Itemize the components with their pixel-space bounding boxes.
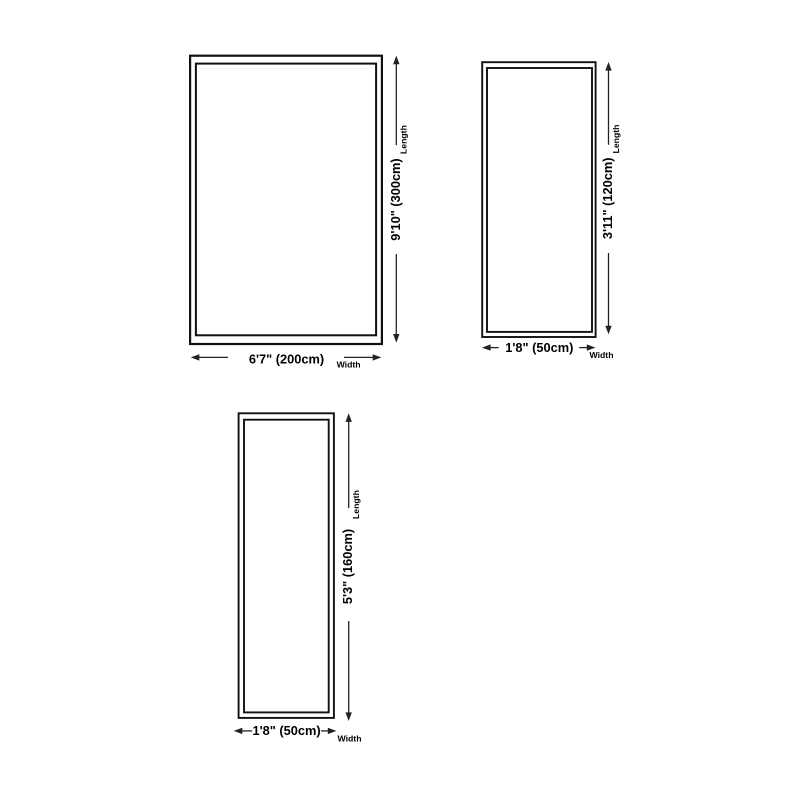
svg-text:Length: Length [399,125,409,154]
svg-text:6'7" (200cm): 6'7" (200cm) [249,351,324,366]
svg-text:1'8" (50cm): 1'8" (50cm) [505,340,573,355]
svg-text:Width: Width [337,734,361,744]
svg-text:3'11" (120cm): 3'11" (120cm) [600,157,615,239]
svg-text:Length: Length [611,125,621,154]
svg-text:5'3" (160cm): 5'3" (160cm) [340,529,355,604]
svg-text:1'8" (50cm): 1'8" (50cm) [253,723,321,738]
svg-text:Width: Width [337,360,361,370]
svg-text:Width: Width [589,350,613,360]
svg-text:Length: Length [351,490,361,519]
svg-text:9'10" (300cm): 9'10" (300cm) [388,158,403,240]
